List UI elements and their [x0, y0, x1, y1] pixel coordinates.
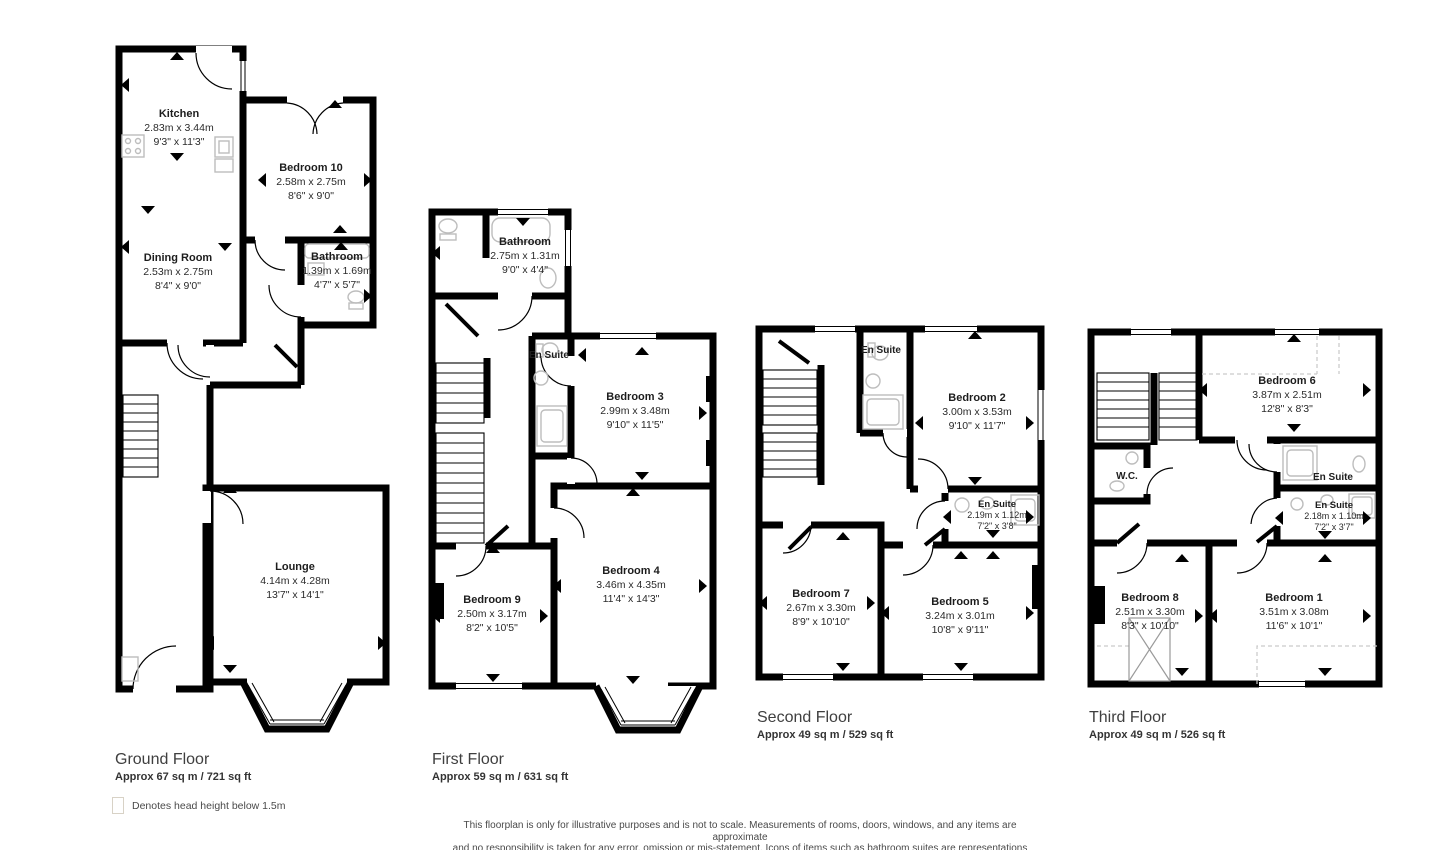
room-label-bedroom-10: Bedroom 10 2.58m x 2.75m 8'6" x 9'0" — [276, 161, 345, 203]
room-name: W.C. — [1116, 471, 1138, 483]
kitchen-fixtures-icon — [122, 135, 233, 681]
room-label-wc: W.C. — [1116, 471, 1138, 483]
room-name: Bathroom — [302, 250, 371, 264]
room-dim-imperial: 8'6" x 9'0" — [276, 189, 345, 203]
room-dim-imperial: 8'2" x 10'5" — [457, 621, 526, 635]
room-dim-metric: 2.53m x 2.75m — [143, 265, 212, 279]
room-name: Bedroom 4 — [596, 564, 665, 578]
room-dim-imperial: 11'4" x 14'3" — [596, 592, 665, 606]
room-dim-imperial: 13'7" x 14'1" — [260, 588, 329, 602]
first-floor-title: First Floor — [432, 751, 504, 769]
room-dim-imperial: 9'0" x 4'4" — [490, 263, 559, 277]
room-name: En Suite — [1313, 472, 1353, 484]
room-label-bedroom-2: Bedroom 2 3.00m x 3.53m 9'10" x 11'7" — [942, 391, 1011, 433]
legend-label: Denotes head height below 1.5m — [132, 800, 286, 812]
disclaimer-line-1: This floorplan is only for illustrative … — [450, 820, 1030, 843]
room-dim-imperial: 10'8" x 9'11" — [925, 623, 994, 637]
room-label-ensuite-second-top: En Suite — [861, 345, 901, 357]
head-height-legend-icon — [112, 797, 124, 814]
room-name: Bedroom 5 — [925, 595, 994, 609]
room-name: Bedroom 1 — [1259, 591, 1328, 605]
room-dim-metric: 3.87m x 2.51m — [1252, 388, 1321, 402]
room-dim-metric: 3.00m x 3.53m — [942, 405, 1011, 419]
room-label-bedroom-4: Bedroom 4 3.46m x 4.35m 11'4" x 14'3" — [596, 564, 665, 606]
room-dim-imperial: 8'3" x 10'10" — [1115, 619, 1184, 633]
room-name: Bedroom 3 — [600, 390, 669, 404]
room-label-bedroom-3: Bedroom 3 2.99m x 3.48m 9'10" x 11'5" — [600, 390, 669, 432]
room-label-bedroom-8: Bedroom 8 2.51m x 3.30m 8'3" x 10'10" — [1115, 591, 1184, 633]
room-name: En Suite — [1304, 500, 1364, 511]
room-label-lounge: Lounge 4.14m x 4.28m 13'7" x 14'1" — [260, 560, 329, 602]
second-floor-plan: En Suite Bedroom 2 3.00m x 3.53m 9'10" x… — [755, 325, 1047, 703]
room-label-bedroom-9: Bedroom 9 2.50m x 3.17m 8'2" x 10'5" — [457, 593, 526, 635]
room-name: Bedroom 9 — [457, 593, 526, 607]
room-name: Bedroom 10 — [276, 161, 345, 175]
first-floor-svg — [428, 208, 718, 738]
room-dim-imperial: 11'6" x 10'1" — [1259, 619, 1328, 633]
room-dim-metric: 2.18m x 1.10m — [1304, 511, 1364, 522]
first-floor-plan: Bathroom 2.75m x 1.31m 9'0" x 4'4" En Su… — [428, 208, 718, 738]
ground-floor-svg — [115, 45, 395, 740]
room-name: Lounge — [260, 560, 329, 574]
room-label-bedroom-6: Bedroom 6 3.87m x 2.51m 12'8" x 8'3" — [1252, 374, 1321, 416]
room-name: En Suite — [529, 350, 569, 362]
ground-floor-plan: Kitchen 2.83m x 3.44m 9'3" x 11'3" Bedro… — [115, 45, 395, 740]
room-label-bathroom-first: Bathroom 2.75m x 1.31m 9'0" x 4'4" — [490, 235, 559, 277]
room-dim-imperial: 9'3" x 11'3" — [144, 135, 213, 149]
room-dim-imperial: 7'2" x 3'7" — [1304, 522, 1364, 533]
first-floor-area: Approx 59 sq m / 631 sq ft — [432, 771, 568, 783]
room-dim-imperial: 9'10" x 11'7" — [942, 419, 1011, 433]
room-dim-metric: 2.67m x 3.30m — [786, 601, 855, 615]
room-name: Bedroom 6 — [1252, 374, 1321, 388]
second-floor-area: Approx 49 sq m / 529 sq ft — [757, 729, 893, 741]
room-label-bedroom-1: Bedroom 1 3.51m x 3.08m 11'6" x 10'1" — [1259, 591, 1328, 633]
room-name: Bathroom — [490, 235, 559, 249]
room-label-bathroom-ground: Bathroom 1.39m x 1.69m 4'7" x 5'7" — [302, 250, 371, 292]
room-name: En Suite — [861, 345, 901, 357]
room-dim-metric: 2.58m x 2.75m — [276, 175, 345, 189]
disclaimer: This floorplan is only for illustrative … — [450, 820, 1030, 850]
stairs-icon — [763, 370, 817, 477]
room-label-ensuite-third-lower: En Suite 2.18m x 1.10m 7'2" x 3'7" — [1304, 500, 1364, 533]
room-label-ensuite-first: En Suite — [529, 350, 569, 362]
legend: Denotes head height below 1.5m — [112, 797, 286, 814]
room-dim-imperial: 8'9" x 10'10" — [786, 615, 855, 629]
room-dim-metric: 1.39m x 1.69m — [302, 264, 371, 278]
room-label-kitchen: Kitchen 2.83m x 3.44m 9'3" x 11'3" — [144, 107, 213, 149]
room-dim-metric: 3.51m x 3.08m — [1259, 605, 1328, 619]
room-label-dining-room: Dining Room 2.53m x 2.75m 8'4" x 9'0" — [143, 251, 212, 293]
ground-floor-title: Ground Floor — [115, 751, 209, 769]
third-floor-plan: Bedroom 6 3.87m x 2.51m 12'8" x 8'3" W.C… — [1087, 328, 1387, 693]
disclaimer-line-2: and no responsibility is taken for any e… — [450, 843, 1030, 850]
stairs-icon — [123, 395, 158, 477]
room-label-bedroom-7: Bedroom 7 2.67m x 3.30m 8'9" x 10'10" — [786, 587, 855, 629]
room-dim-metric: 2.75m x 1.31m — [490, 249, 559, 263]
room-dim-metric: 3.46m x 4.35m — [596, 578, 665, 592]
room-label-ensuite-third-upper: En Suite — [1313, 472, 1353, 484]
ground-floor-area: Approx 67 sq m / 721 sq ft — [115, 771, 251, 783]
room-name: Dining Room — [143, 251, 212, 265]
room-dim-metric: 4.14m x 4.28m — [260, 574, 329, 588]
third-floor-area: Approx 49 sq m / 526 sq ft — [1089, 729, 1225, 741]
room-dim-metric: 2.99m x 3.48m — [600, 404, 669, 418]
room-dim-imperial: 12'8" x 8'3" — [1252, 402, 1321, 416]
room-name: Bedroom 8 — [1115, 591, 1184, 605]
room-dim-imperial: 4'7" x 5'7" — [302, 278, 371, 292]
room-dim-imperial: 7'2" x 3'8" — [967, 521, 1027, 532]
third-floor-title: Third Floor — [1089, 709, 1166, 727]
room-dim-metric: 2.51m x 3.30m — [1115, 605, 1184, 619]
room-dim-imperial: 9'10" x 11'5" — [600, 418, 669, 432]
stairs-icon — [1097, 373, 1197, 440]
room-dim-metric: 2.19m x 1.12m — [967, 510, 1027, 521]
stairs-icon — [436, 363, 484, 543]
room-dim-metric: 2.50m x 3.17m — [457, 607, 526, 621]
room-dim-metric: 2.83m x 3.44m — [144, 121, 213, 135]
room-name: En Suite — [967, 499, 1027, 510]
room-dim-metric: 3.24m x 3.01m — [925, 609, 994, 623]
room-label-ensuite-second: En Suite 2.19m x 1.12m 7'2" x 3'8" — [967, 499, 1027, 532]
room-name: Bedroom 2 — [942, 391, 1011, 405]
room-name: Kitchen — [144, 107, 213, 121]
floorplan-page: Kitchen 2.83m x 3.44m 9'3" x 11'3" Bedro… — [0, 0, 1434, 850]
room-dim-imperial: 8'4" x 9'0" — [143, 279, 212, 293]
room-label-bedroom-5: Bedroom 5 3.24m x 3.01m 10'8" x 9'11" — [925, 595, 994, 637]
second-floor-title: Second Floor — [757, 709, 852, 727]
room-name: Bedroom 7 — [786, 587, 855, 601]
